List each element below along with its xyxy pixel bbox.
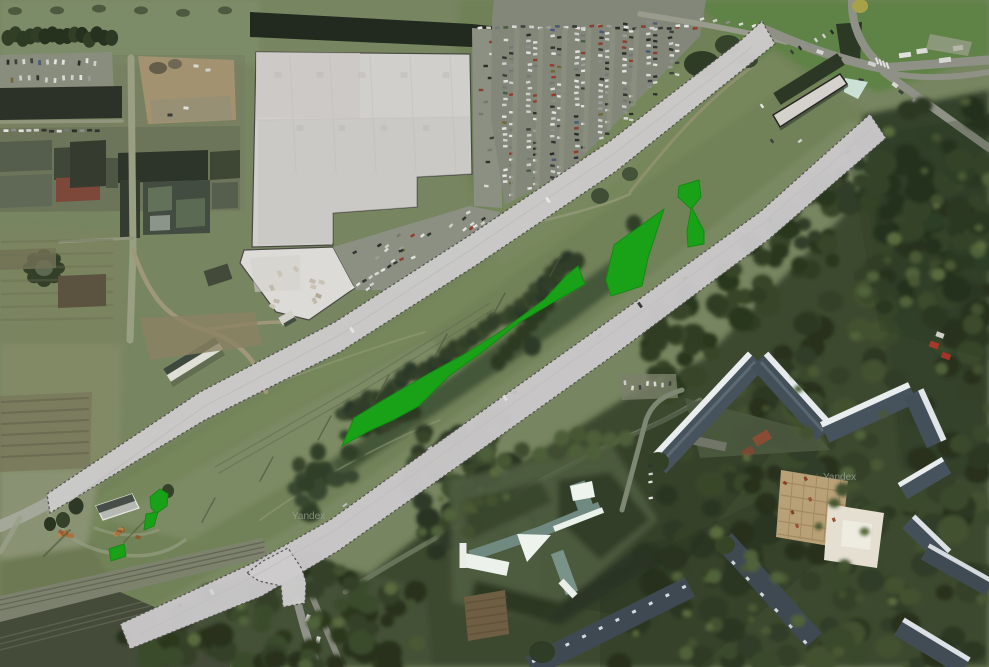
svg-text:Yandex: Yandex bbox=[823, 472, 856, 483]
svg-text:Yandex: Yandex bbox=[292, 511, 325, 522]
